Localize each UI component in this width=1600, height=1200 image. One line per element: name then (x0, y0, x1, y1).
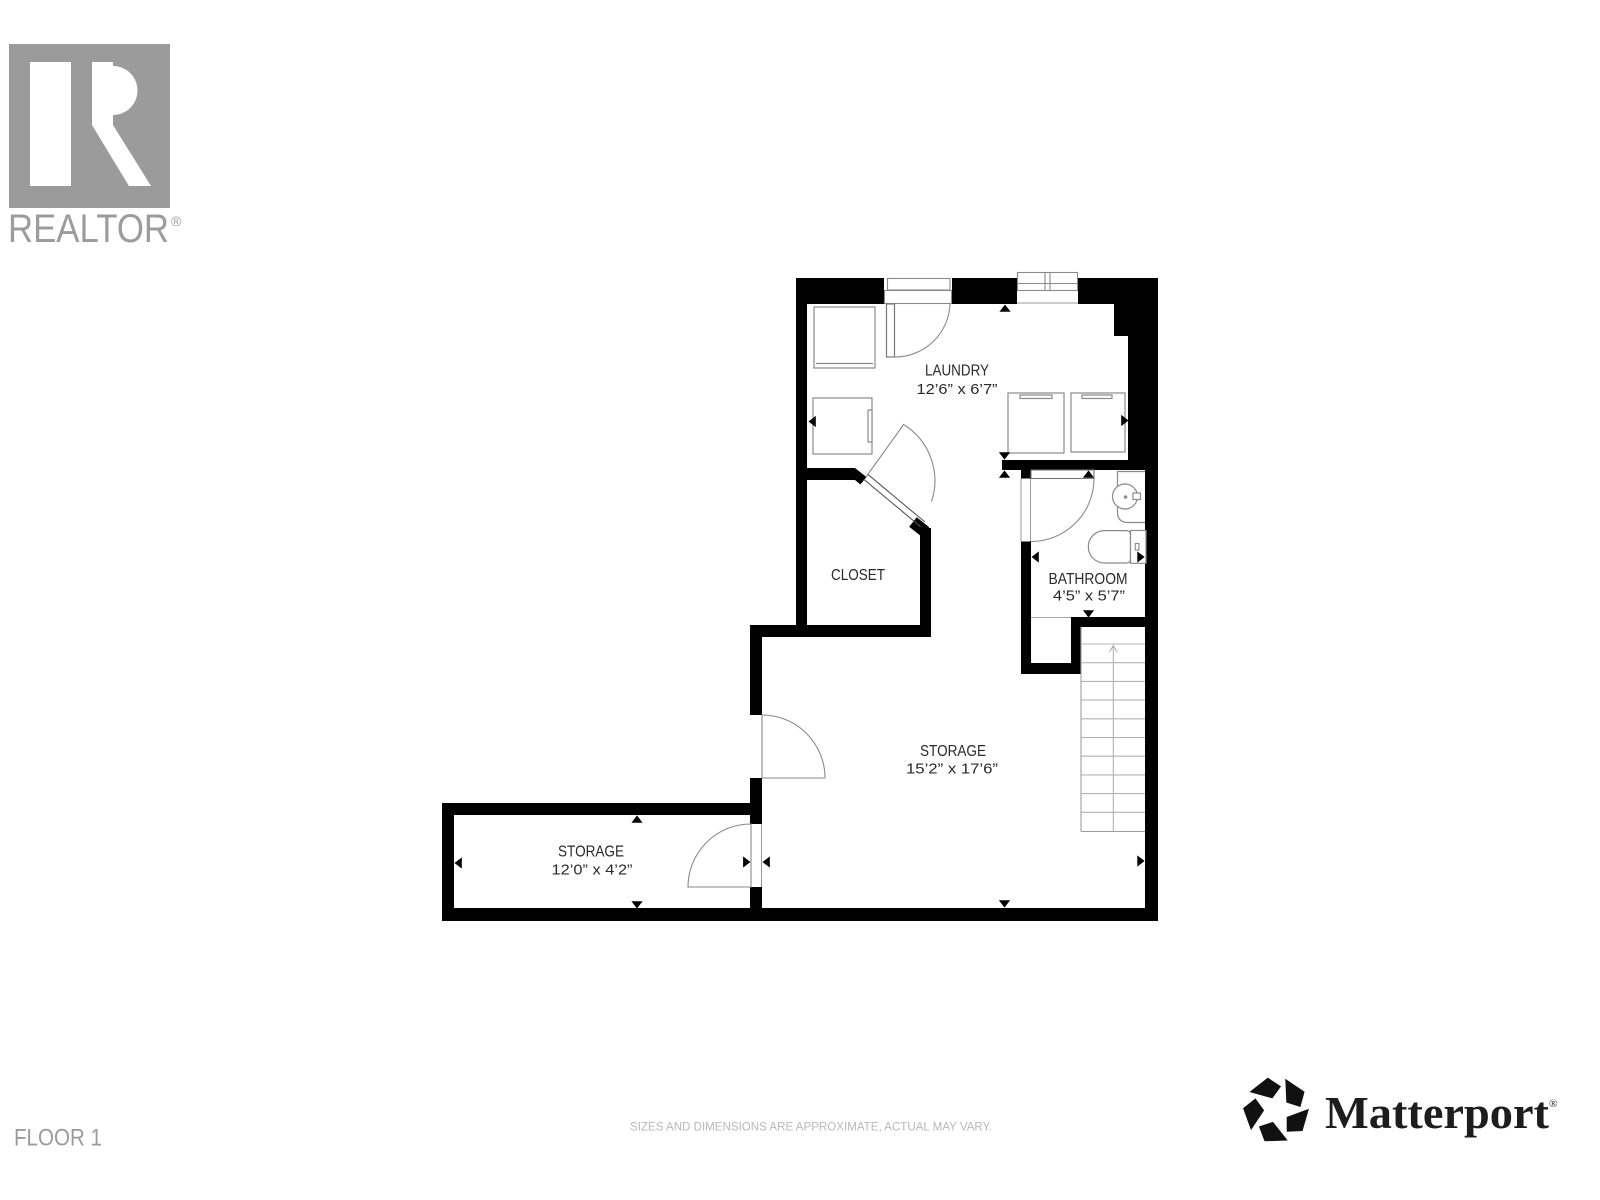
svg-text:4’5” x 5’7”: 4’5” x 5’7” (1053, 588, 1125, 605)
svg-text:Matterport: Matterport (1325, 1087, 1550, 1138)
svg-text:STORAGE: STORAGE (558, 844, 624, 861)
svg-text:12’6” x 6’7”: 12’6” x 6’7” (917, 381, 998, 398)
svg-text:®: ® (1549, 1098, 1557, 1110)
svg-text:CLOSET: CLOSET (831, 567, 885, 584)
svg-text:LAUNDRY: LAUNDRY (925, 363, 989, 380)
svg-text:FLOOR 1: FLOOR 1 (14, 1125, 102, 1152)
svg-text:BATHROOM: BATHROOM (1049, 571, 1128, 588)
svg-text:15’2” x 17’6”: 15’2” x 17’6” (906, 761, 998, 778)
svg-text:REALTOR: REALTOR (8, 207, 169, 251)
svg-text:STORAGE: STORAGE (920, 743, 986, 760)
svg-text:12’0” x 4’2”: 12’0” x 4’2” (552, 862, 633, 879)
svg-text:®: ® (171, 213, 182, 229)
svg-text:SIZES AND DIMENSIONS ARE APPRO: SIZES AND DIMENSIONS ARE APPROXIMATE, AC… (630, 1120, 992, 1134)
